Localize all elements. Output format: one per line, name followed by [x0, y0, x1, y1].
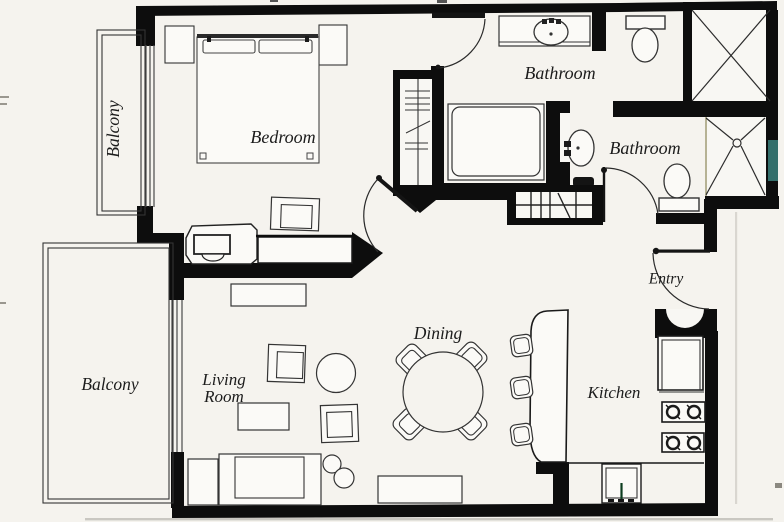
svg-text:Kitchen: Kitchen	[587, 383, 641, 402]
svg-text:Bathroom: Bathroom	[609, 138, 680, 158]
svg-text:Entry: Entry	[648, 271, 684, 288]
svg-text:Dining: Dining	[413, 323, 463, 343]
svg-text:Balcony: Balcony	[81, 374, 139, 394]
svg-text:Bedroom: Bedroom	[250, 127, 315, 147]
svg-text:Bathroom: Bathroom	[524, 63, 595, 83]
svg-text:Balcony: Balcony	[103, 100, 123, 158]
